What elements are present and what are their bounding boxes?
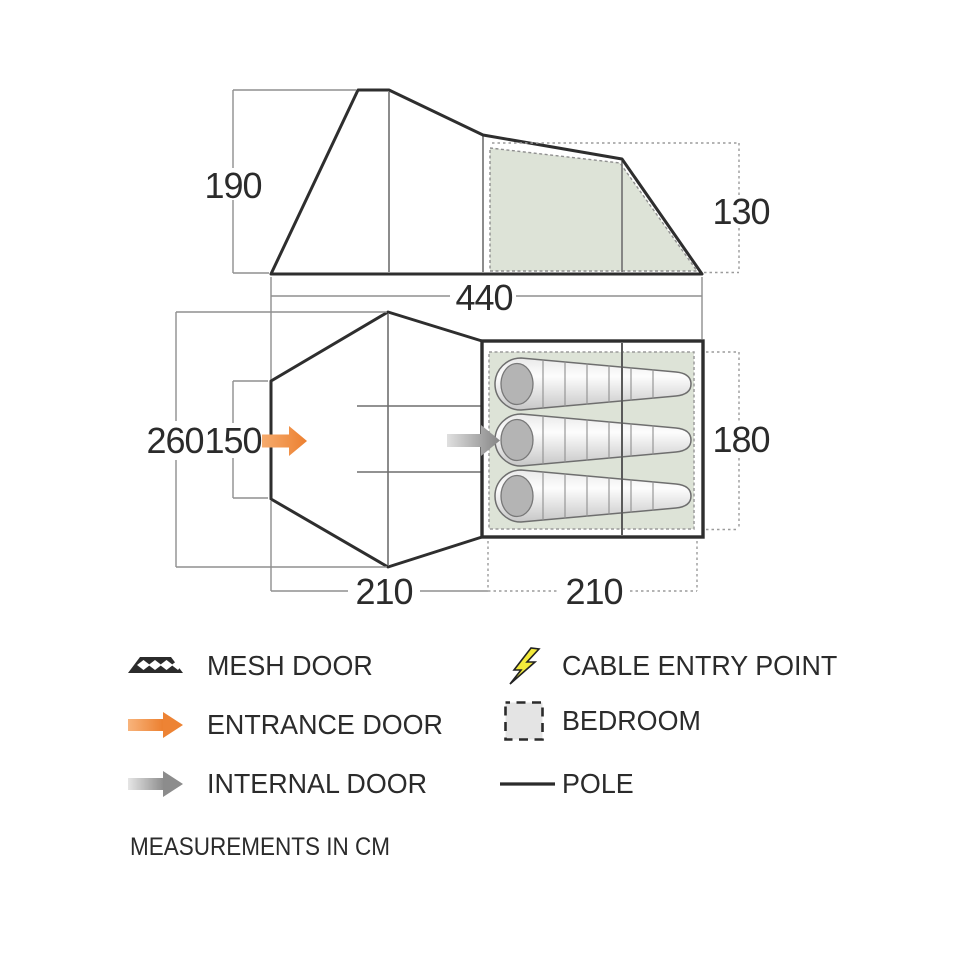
floor-plan: 260 150 180 210 (146, 312, 769, 612)
legend-item-cable-entry: CABLE ENTRY POINT (500, 638, 849, 694)
dim-bedroom-depth: 180 (712, 419, 769, 460)
legend-item-internal-door: INTERNAL DOOR (127, 756, 436, 812)
internal-door-label: INTERNAL DOOR (207, 770, 427, 798)
legend-item-entrance-door: ENTRANCE DOOR (127, 697, 453, 753)
dim-entrance-width: 150 (204, 420, 261, 461)
internal-door-icon (127, 770, 183, 798)
dim-side-right-height: 130 (712, 191, 769, 232)
cable-entry-icon (500, 646, 556, 686)
measurements-note: MEASUREMENTS IN CM (130, 833, 390, 862)
dim-porch-length: 210 (355, 571, 412, 612)
entrance-door-label: ENTRANCE DOOR (207, 711, 443, 739)
dim-side-left-height: 190 (204, 165, 261, 206)
bedroom-side-area (490, 148, 697, 271)
bedroom-icon (500, 699, 556, 743)
bedroom-label: BEDROOM (562, 707, 701, 735)
legend-item-bedroom: BEDROOM (500, 693, 707, 749)
entrance-door-icon (127, 711, 183, 739)
legend-item-pole: POLE (500, 756, 637, 812)
dim-porch-width: 260 (146, 420, 203, 461)
tent-dimensions-page: 190 130 440 (0, 0, 960, 960)
mesh-door-icon (127, 656, 183, 676)
mesh-door-label: MESH DOOR (207, 652, 373, 680)
dim-bedroom-length: 210 (565, 571, 622, 612)
pole-label: POLE (562, 770, 634, 798)
cable-entry-label: CABLE ENTRY POINT (562, 652, 837, 680)
pole-icon (500, 770, 556, 798)
dim-total-length: 440 (455, 277, 512, 318)
tent-diagram: 190 130 440 (0, 0, 960, 960)
side-view: 190 130 440 (204, 90, 769, 380)
legend-item-mesh-door: MESH DOOR (127, 638, 380, 694)
